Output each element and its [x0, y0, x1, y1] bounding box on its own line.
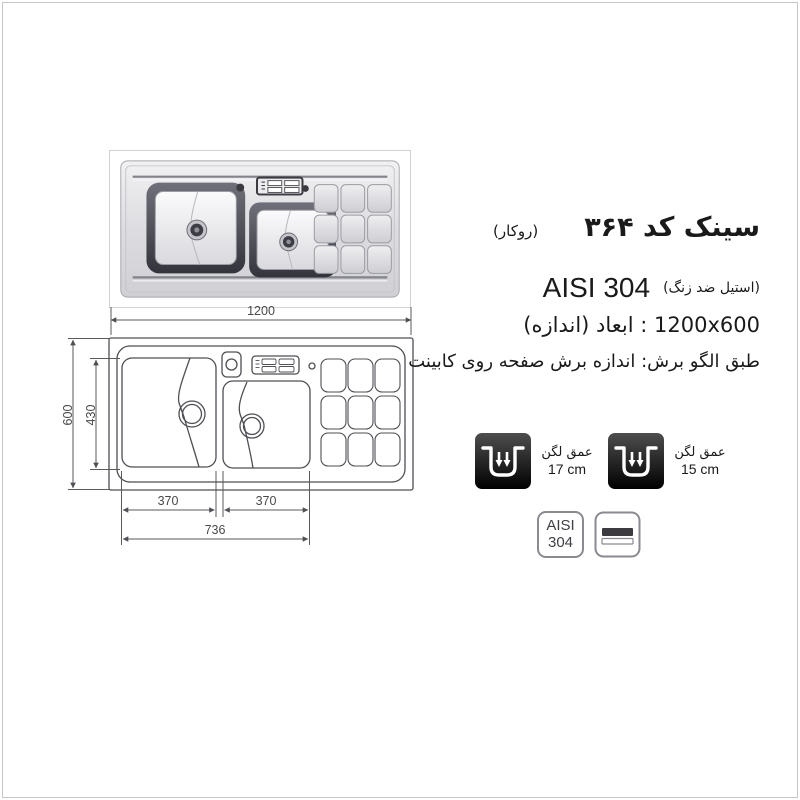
depth-item-15cm: عمق لگن 15 cm [607, 432, 726, 490]
dim-overall-width: 1200 [247, 304, 275, 318]
product-photo-frame [109, 150, 411, 308]
drawing-drainboard-grid [321, 359, 400, 466]
product-photo [110, 151, 410, 307]
dim-bowl1-width: 370 [158, 494, 179, 508]
dim-bowl-depth-span: 430 [84, 405, 98, 426]
steel-sheet-badge [594, 511, 641, 558]
spec-sheet-page: 1200 600 430 370 370 736 سینک کد ۳۶۴ (رو… [0, 0, 800, 800]
depth-labels: عمق لگن 15 cm [674, 445, 726, 477]
depth-icons-row: عمق لگن 17 cm عمق لگن 15 cm [474, 432, 726, 490]
drawing-dispenser-hole [222, 352, 241, 377]
badge-row: AISI 304 [537, 511, 641, 558]
title-row: سینک کد ۳۶۴ (روکار) [493, 212, 760, 243]
size-line: 1200x600 : ابعاد (اندازه) [523, 313, 760, 337]
dim-bowl2-width: 370 [256, 494, 277, 508]
dim-bowls-span: 736 [205, 523, 226, 537]
dim-overall-depth: 600 [61, 405, 75, 426]
depth-label: عمق لگن [541, 445, 592, 460]
depth-item-17cm: عمق لگن 17 cm [474, 432, 593, 490]
aisi-304-badge: AISI 304 [537, 511, 584, 558]
basin-depth-icon [607, 432, 665, 490]
technical-drawing: 1200 600 430 370 370 736 [50, 295, 440, 560]
depth-value: 15 cm [681, 461, 719, 477]
steel-grade: AISI 304 [543, 272, 650, 304]
photo-control-panel [257, 178, 302, 195]
basin-depth-icon [474, 432, 532, 490]
aisi-badge-line2: 304 [548, 535, 573, 551]
photo-drainboard-grid [314, 185, 391, 274]
cut-note-line: طبق الگو برش: اندازه برش صفحه روی کابینت [408, 351, 760, 372]
depth-label: عمق لگن [674, 445, 725, 460]
steel-note: (استیل ضد زنگ) [663, 280, 760, 296]
drawing-right-bowl [223, 381, 310, 468]
steel-sheet-icon [594, 511, 641, 558]
page-title: سینک کد ۳۶۴ [584, 212, 760, 243]
aisi-badge-line1: AISI [546, 518, 574, 534]
mount-type-note: (روکار) [493, 222, 538, 240]
depth-labels: عمق لگن 17 cm [541, 445, 593, 477]
steel-row: (استیل ضد زنگ) AISI 304 [543, 272, 760, 304]
depth-value: 17 cm [548, 461, 586, 477]
photo-tap-hole [236, 184, 244, 192]
